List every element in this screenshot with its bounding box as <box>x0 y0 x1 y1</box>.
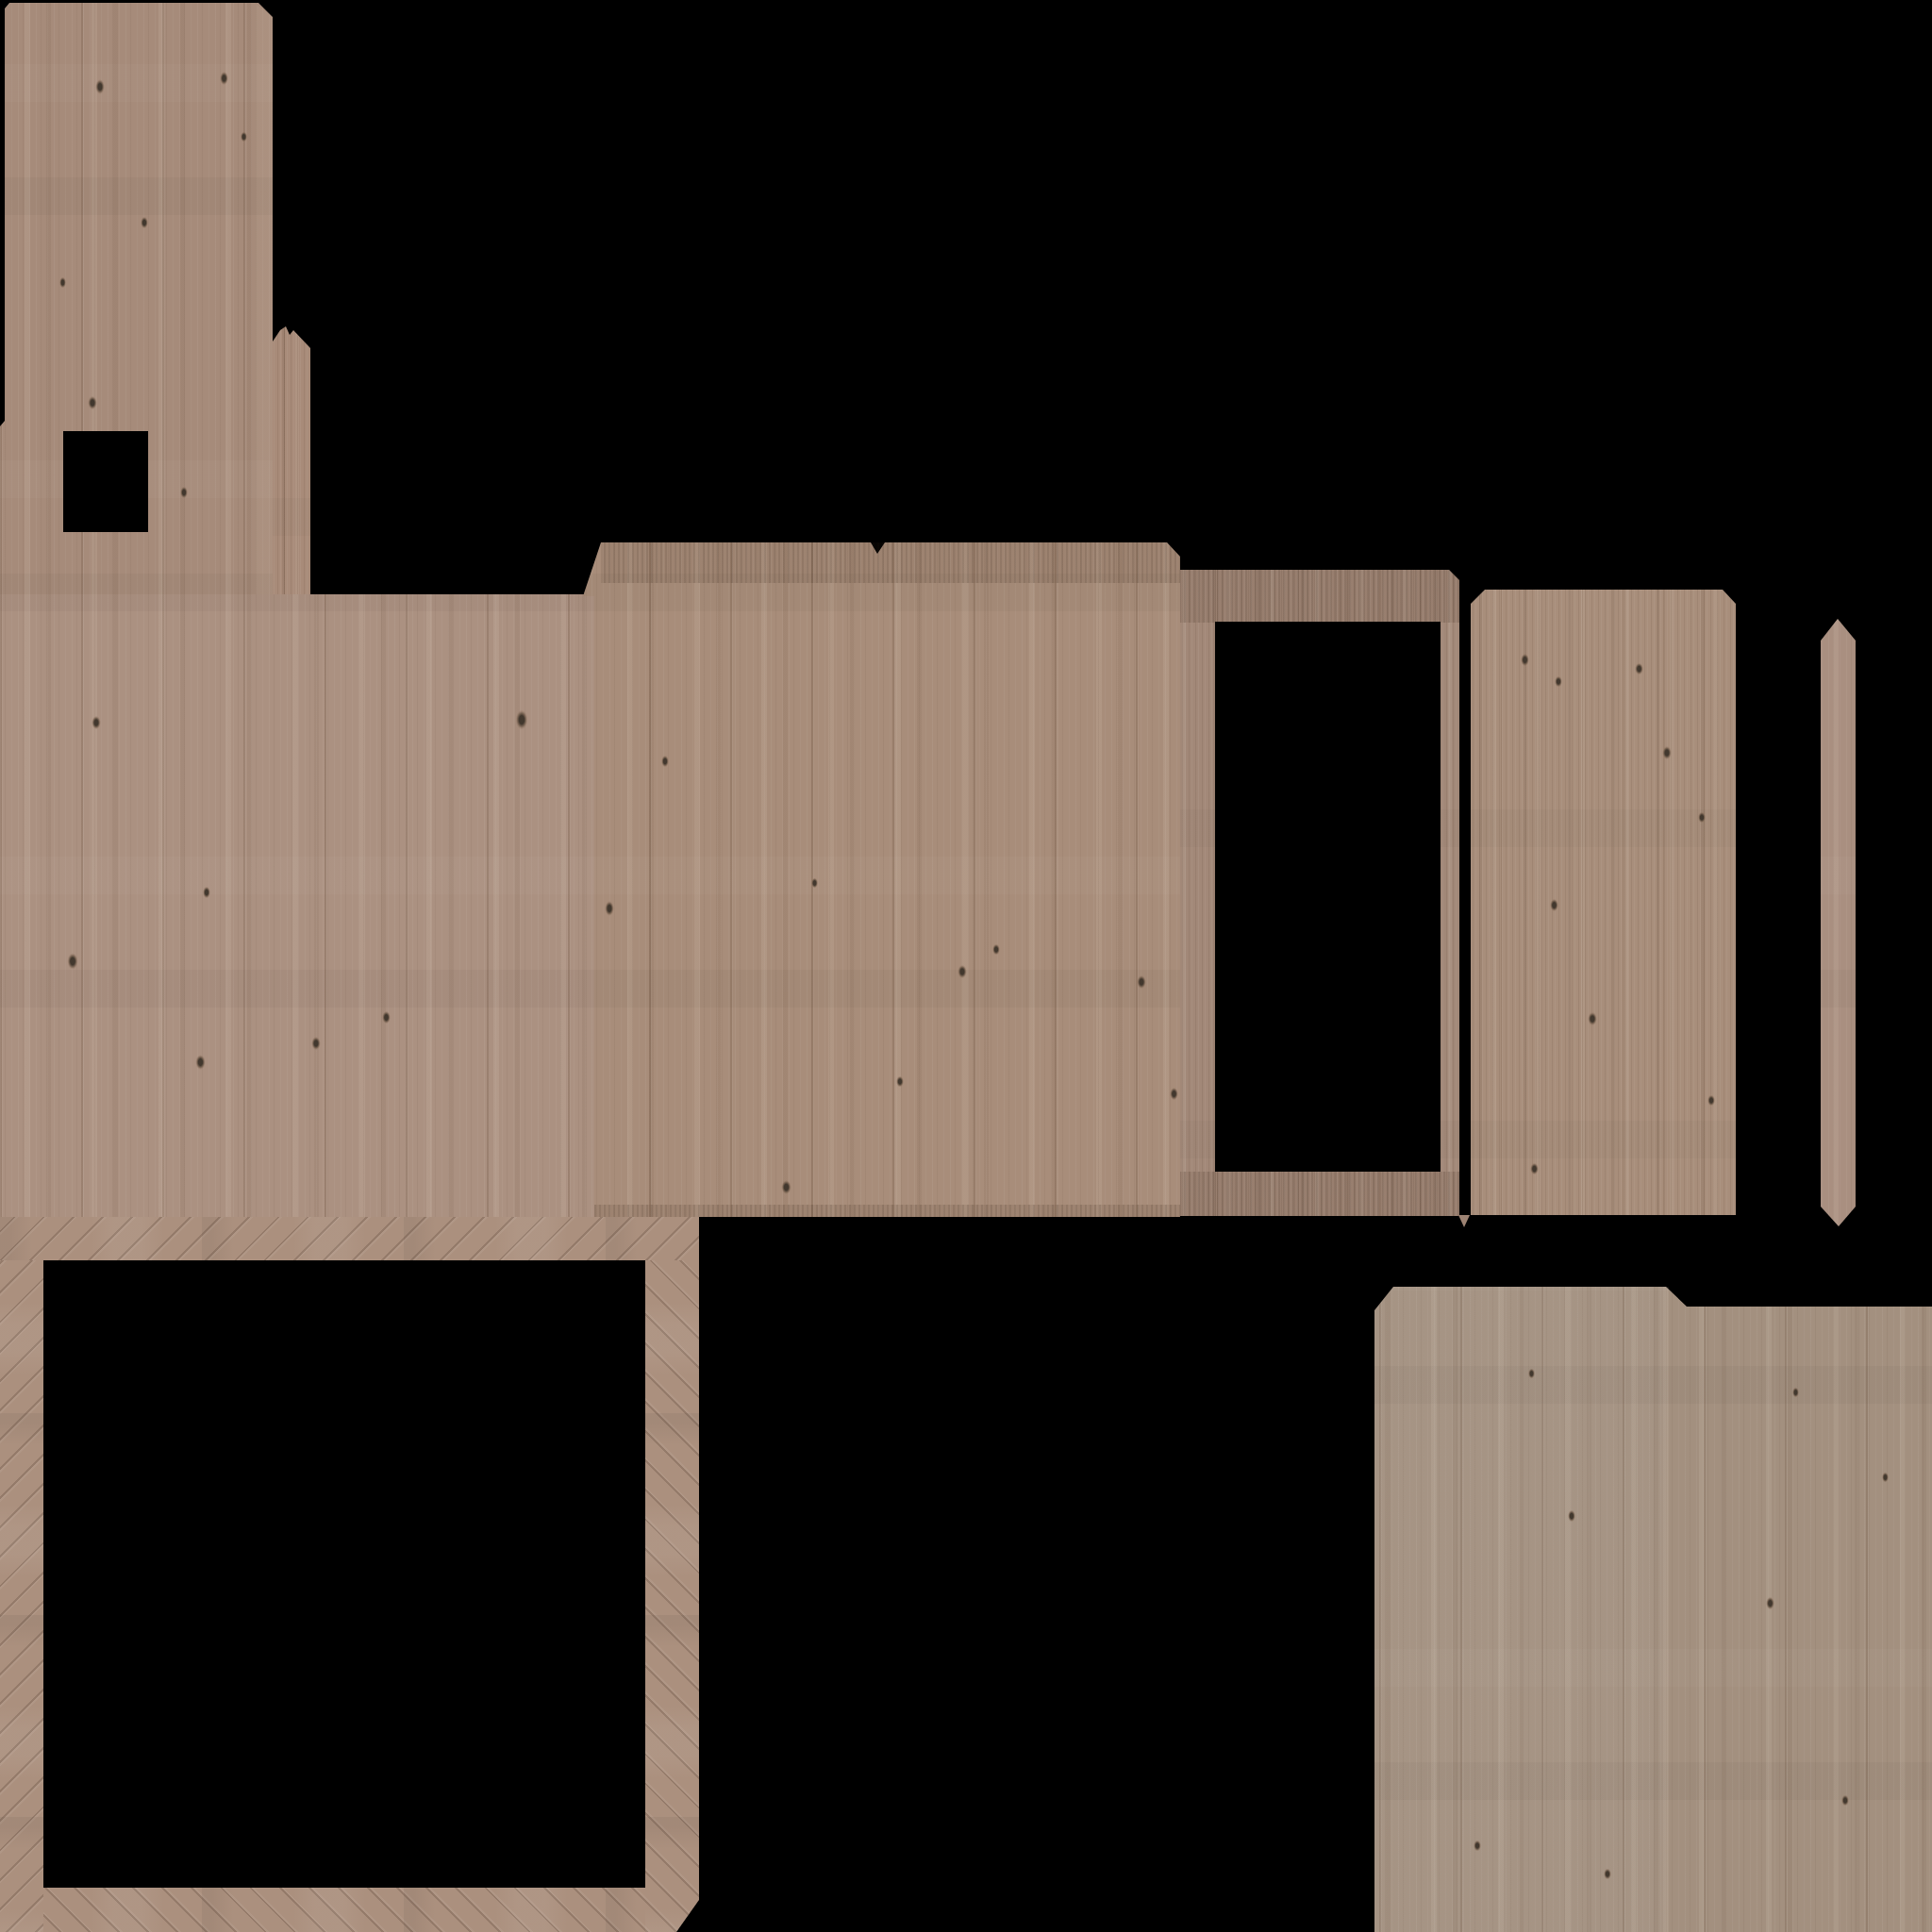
wood-knot <box>895 1074 905 1089</box>
wood-knot <box>1554 675 1563 689</box>
wood-knot <box>94 77 106 96</box>
wood-knot <box>604 899 615 918</box>
wood-knot <box>1169 1086 1179 1102</box>
wood-knot <box>514 708 529 732</box>
wood-knot <box>194 1053 207 1072</box>
wood-knot <box>1520 652 1530 668</box>
wood-knot <box>957 963 968 980</box>
wood-knot <box>58 275 67 290</box>
wood-knot <box>660 754 670 769</box>
wood-knot <box>1527 1367 1536 1380</box>
wood-knot <box>1529 1161 1540 1176</box>
wood-knot <box>87 394 98 411</box>
wood-knot <box>179 485 189 500</box>
wood-knot <box>240 130 248 143</box>
wood-knot <box>91 714 102 731</box>
wood-knot <box>780 1178 792 1196</box>
wood-knot <box>1881 1471 1890 1484</box>
wood-knot <box>1567 1508 1576 1524</box>
wood-knot <box>1587 1010 1598 1027</box>
wood-knot <box>810 876 819 890</box>
wood-knot <box>1473 1839 1482 1853</box>
wood-knot <box>1603 1867 1612 1881</box>
wood-knot <box>1765 1595 1775 1611</box>
wood-knot <box>1549 897 1559 913</box>
wood-knot <box>1136 974 1147 991</box>
wood-knot <box>1697 810 1707 824</box>
wood-knot <box>310 1035 322 1052</box>
wood-knot <box>202 885 211 900</box>
wood-knot <box>991 942 1001 957</box>
wood-knot <box>140 215 149 230</box>
wood-knot <box>66 951 79 972</box>
wood-knot <box>1634 661 1644 676</box>
wood-knot <box>381 1009 391 1025</box>
wood-knot <box>1661 744 1673 761</box>
wood-knot <box>1840 1793 1850 1807</box>
wood-knot <box>219 70 229 87</box>
wood-knot <box>1791 1386 1800 1399</box>
wood-knot <box>1707 1093 1716 1108</box>
texture-atlas <box>0 0 1932 1932</box>
